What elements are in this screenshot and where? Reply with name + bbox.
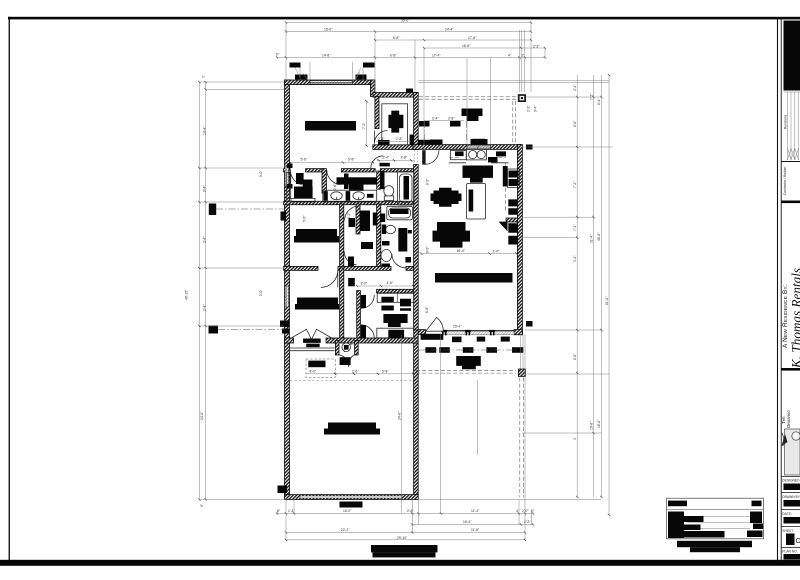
- svg-text:K. Thomas Rentals: K. Thomas Rentals: [789, 268, 800, 369]
- svg-text:2'-4": 2'-4": [493, 249, 500, 253]
- svg-text:2'-2": 2'-2": [527, 105, 531, 112]
- svg-text:31'-4": 31'-4": [589, 234, 593, 243]
- svg-text:DESIGNED: DESIGNED: [782, 479, 800, 483]
- svg-text:3'-0": 3'-0": [361, 282, 368, 286]
- svg-text:29'-10": 29'-10": [397, 536, 408, 540]
- svg-text:2'-8": 2'-8": [396, 137, 403, 141]
- svg-text:2'-8": 2'-8": [401, 156, 408, 160]
- svg-text:O: O: [796, 538, 800, 545]
- svg-text:3'-4": 3'-4": [573, 255, 577, 262]
- svg-text:3'-2": 3'-2": [347, 212, 351, 219]
- svg-text:17'-8": 17'-8": [468, 36, 477, 40]
- svg-text:11'-4": 11'-4": [471, 509, 480, 513]
- svg-text:2'-8": 2'-8": [378, 137, 385, 141]
- svg-text:2'-6": 2'-6": [333, 183, 337, 190]
- svg-text:3': 3': [573, 437, 577, 440]
- svg-text:22'-2": 22'-2": [341, 528, 350, 532]
- svg-text:8'-2": 8'-2": [426, 178, 430, 185]
- svg-text:7'-2": 7'-2": [362, 122, 366, 129]
- svg-text:5'-6": 5'-6": [301, 157, 308, 161]
- svg-text:61'-0": 61'-0": [605, 296, 609, 305]
- svg-text:5'-0": 5'-0": [303, 215, 307, 222]
- svg-text:15'-4": 15'-4": [453, 325, 462, 329]
- svg-text:10'-8": 10'-8": [589, 421, 593, 430]
- svg-text:7'-4": 7'-4": [573, 224, 577, 231]
- svg-text:14'-8": 14'-8": [322, 54, 331, 58]
- svg-text:5'-8": 5'-8": [348, 157, 355, 161]
- svg-text:4': 4': [516, 509, 519, 513]
- svg-text:4": 4": [508, 54, 512, 58]
- svg-text:DRAWN BY: DRAWN BY: [782, 495, 800, 499]
- svg-text:16'-4": 16'-4": [457, 249, 466, 253]
- svg-text:15'-6": 15'-6": [324, 28, 333, 32]
- svg-text:24'-4": 24'-4": [445, 28, 454, 32]
- svg-text:16'-8": 16'-8": [597, 419, 601, 428]
- svg-text:DATE:: DATE:: [782, 512, 792, 516]
- svg-text:24'-0": 24'-0": [200, 411, 204, 420]
- svg-text:6'-8": 6'-8": [390, 54, 397, 58]
- svg-text:16'-4": 16'-4": [463, 520, 472, 524]
- svg-text:2'-8": 2'-8": [407, 509, 414, 513]
- svg-text:8'-0": 8'-0": [310, 369, 317, 373]
- svg-text:9": 9": [276, 53, 280, 57]
- svg-text:35'-0": 35'-0": [401, 19, 410, 23]
- svg-text:6'-6": 6'-6": [425, 306, 429, 313]
- svg-text:5": 5": [200, 503, 204, 507]
- svg-text:SHEET: SHEET: [782, 529, 793, 533]
- svg-text:8'-4": 8'-4": [597, 98, 601, 105]
- svg-text:2'-4": 2'-4": [383, 156, 390, 160]
- svg-text:2'-4": 2'-4": [573, 84, 577, 91]
- svg-text:5'-0": 5'-0": [259, 289, 263, 296]
- svg-text:6'-8": 6'-8": [393, 36, 400, 40]
- svg-text:2'-0": 2'-0": [522, 509, 529, 513]
- svg-text:THE: THE: [781, 416, 786, 424]
- svg-text:8'-8": 8'-8": [573, 120, 577, 127]
- svg-text:DRAWING: DRAWING: [786, 410, 791, 428]
- svg-text:17'-4": 17'-4": [432, 54, 441, 58]
- svg-text:Contractor / Builder: Contractor / Builder: [783, 166, 787, 195]
- svg-text:5'-8": 5'-8": [382, 370, 389, 374]
- svg-text:1'-4": 1'-4": [288, 509, 295, 513]
- svg-text:16'-6": 16'-6": [462, 44, 471, 48]
- svg-text:Revisions: Revisions: [783, 114, 787, 129]
- svg-text:6'-0": 6'-0": [426, 246, 430, 253]
- svg-text:49'-10": 49'-10": [185, 289, 189, 300]
- svg-text:PLAN NO.: PLAN NO.: [782, 550, 797, 554]
- svg-text:9'-4": 9'-4": [534, 105, 538, 112]
- svg-text:2'-2": 2'-2": [533, 45, 540, 49]
- svg-text:5'-0": 5'-0": [259, 170, 263, 177]
- svg-text:16'-0": 16'-0": [343, 509, 352, 513]
- svg-text:11'-8": 11'-8": [471, 528, 480, 532]
- svg-text:24'-8": 24'-8": [397, 411, 401, 420]
- svg-text:7'-2": 7'-2": [573, 181, 577, 188]
- svg-text:4'-6": 4'-6": [387, 281, 394, 285]
- svg-text:8'-8": 8'-8": [573, 353, 577, 360]
- svg-text:2'-4": 2'-4": [432, 117, 439, 121]
- svg-text:46'-8": 46'-8": [597, 232, 601, 241]
- svg-text:2'-8": 2'-8": [448, 117, 455, 121]
- svg-text:3': 3': [202, 75, 206, 78]
